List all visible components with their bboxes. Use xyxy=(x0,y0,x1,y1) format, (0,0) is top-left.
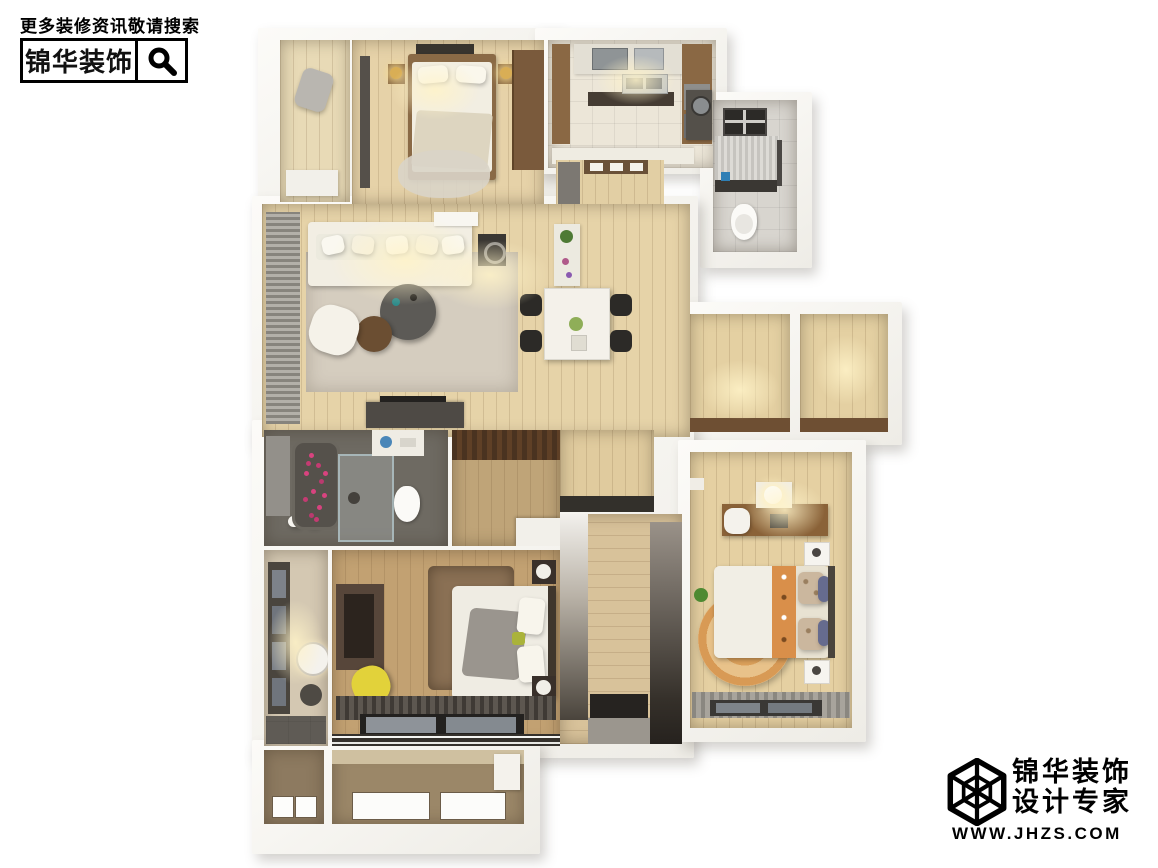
sofa-pillow xyxy=(385,235,409,255)
desk-chair xyxy=(724,508,750,534)
single-bed xyxy=(714,566,830,658)
range-hood xyxy=(634,48,664,70)
sofa xyxy=(308,222,472,286)
bed-pillow xyxy=(516,597,546,636)
bed-runner-pattern xyxy=(772,566,796,658)
window-pane xyxy=(272,678,286,706)
window-pane xyxy=(768,703,812,713)
tv-screen xyxy=(380,396,446,402)
bathtub xyxy=(292,440,340,530)
cooktop xyxy=(592,48,628,70)
window-pane xyxy=(272,606,286,634)
decor-tray xyxy=(484,242,506,264)
bath-shelf xyxy=(372,430,424,456)
desk-lamp xyxy=(764,486,782,504)
floor-window-pane xyxy=(440,792,506,820)
bath-vanity xyxy=(266,436,290,516)
kitchen-sink xyxy=(622,74,668,94)
table-lamp xyxy=(390,67,402,79)
sink-basin xyxy=(626,78,643,89)
bed-pillow xyxy=(417,65,448,85)
wardrobe-mirror-left xyxy=(560,514,588,720)
console-table xyxy=(434,212,478,226)
living-curtain-wall xyxy=(266,212,300,424)
wardrobe-mirror-right xyxy=(650,522,682,744)
logo-url-text: WWW.JHZS.COM xyxy=(952,824,1122,844)
room-walkin-closet xyxy=(452,430,560,546)
dining-table xyxy=(544,288,610,360)
door-glass xyxy=(630,163,643,171)
wardrobe xyxy=(512,50,544,170)
floor-window-pane xyxy=(352,792,430,820)
nightstand-decor xyxy=(812,666,821,675)
toilet-seat xyxy=(735,214,753,234)
balcony-railing xyxy=(332,734,560,746)
bath-counter xyxy=(715,180,777,192)
entry-console xyxy=(554,224,580,286)
nightstand xyxy=(532,560,556,584)
kitchen-counter-top xyxy=(574,44,686,74)
tv-console xyxy=(336,584,384,670)
bench-dark xyxy=(590,694,648,718)
flower-decor xyxy=(562,258,569,265)
kitchen-cabinet-left xyxy=(552,44,570,144)
window-pane xyxy=(272,570,286,598)
dining-chair xyxy=(520,294,542,316)
window-pane xyxy=(716,703,760,713)
headboard xyxy=(828,566,835,658)
shower-column xyxy=(777,140,782,186)
room-master-bedroom-top xyxy=(352,40,544,204)
railing-bar xyxy=(332,742,560,744)
washer-door xyxy=(691,96,711,116)
sofa-pillow xyxy=(415,234,440,256)
window-curtain xyxy=(360,56,370,188)
sink-basin xyxy=(646,78,662,89)
bedroom-rug xyxy=(398,150,490,198)
door-glass xyxy=(610,163,623,171)
room-powder xyxy=(264,550,328,746)
room-bathroom-top xyxy=(713,100,797,252)
room-living-dining xyxy=(262,204,690,437)
window-wall xyxy=(710,700,822,716)
accent-pillow-green xyxy=(512,632,525,645)
side-table-dark xyxy=(478,234,506,266)
cabinet-dark-edge xyxy=(560,496,654,512)
window-mullion xyxy=(725,120,765,123)
step-platform xyxy=(516,518,560,546)
washer-dryer-unit xyxy=(686,90,712,140)
room-balcony-bottom-right xyxy=(332,750,524,824)
threshold-dark-wood xyxy=(800,418,888,432)
tv-screen xyxy=(344,594,374,658)
sofa-pillow xyxy=(351,235,375,256)
potted-plant xyxy=(694,588,708,602)
balcony-cabinet xyxy=(286,170,338,196)
room-storage-right-2 xyxy=(800,314,888,432)
toilet xyxy=(731,204,757,240)
logo-tagline-text: 设计专家 xyxy=(1012,788,1132,818)
floor-tile-dark xyxy=(266,716,326,744)
potted-plant xyxy=(560,230,573,243)
cube-logo-icon xyxy=(946,758,1008,826)
room-bedroom-lower-right xyxy=(690,452,852,728)
room-inner xyxy=(560,430,654,512)
placemat xyxy=(571,335,587,351)
bed-pillow xyxy=(455,65,486,84)
kitchen-counter-dark xyxy=(588,92,674,106)
floor-window-pane xyxy=(295,796,317,818)
room-bathroom-lower xyxy=(264,430,448,546)
nightstand-lamp xyxy=(536,680,551,695)
nightstand-decor xyxy=(812,548,821,557)
window-pane xyxy=(272,642,286,670)
dining-chair xyxy=(610,294,632,316)
coffee-table-small xyxy=(356,316,392,352)
stool-dark xyxy=(300,684,322,706)
window-pane xyxy=(446,717,516,733)
nightstand xyxy=(804,542,830,566)
railing-bar xyxy=(332,736,560,738)
wash-basin xyxy=(296,642,328,676)
footer-logo: 锦华装饰 设计专家 WWW.JHZS.COM xyxy=(938,752,1150,856)
laptop xyxy=(770,514,788,528)
soap-tray xyxy=(400,438,416,447)
shower-enclosure xyxy=(338,454,394,542)
flower-vase-blue xyxy=(380,436,392,448)
balcony-cabinet xyxy=(494,754,520,790)
tv-cabinet xyxy=(366,402,464,428)
wall-shelf xyxy=(690,478,704,490)
room-balcony-top xyxy=(280,40,350,202)
screenshot-canvas: 更多装修资讯敬请搜索 锦华装饰 xyxy=(0,0,1158,868)
room-balcony-bottom-left xyxy=(264,750,324,824)
floor-strip-gray xyxy=(588,718,650,744)
wardrobe-dark xyxy=(452,430,560,460)
window-wall xyxy=(360,714,524,736)
toilet xyxy=(394,486,420,522)
tall-window xyxy=(268,562,290,714)
rose-petals xyxy=(309,453,314,458)
table-decor xyxy=(392,298,400,306)
shower-head xyxy=(348,492,360,504)
table-decor xyxy=(410,294,417,301)
flower-decor xyxy=(566,272,572,278)
floorplan-render xyxy=(0,0,1158,868)
entry-door xyxy=(584,160,648,174)
dining-chair xyxy=(610,330,632,352)
nightstand xyxy=(804,660,830,684)
room-wardrobe-corridor xyxy=(560,514,682,744)
window-pane xyxy=(366,717,436,733)
threshold-dark-wood xyxy=(690,418,790,432)
skylight-window xyxy=(723,108,767,136)
centerpiece xyxy=(569,317,583,331)
floor-window-pane xyxy=(272,796,294,818)
room-bedroom-lower-left xyxy=(332,550,560,746)
nightstand-lamp xyxy=(536,564,551,579)
table-lamp xyxy=(500,67,512,79)
door-glass xyxy=(590,163,603,171)
dining-chair xyxy=(520,330,542,352)
sofa-pillow xyxy=(441,235,465,256)
lounge-chair xyxy=(293,66,336,114)
room-storage-right-1 xyxy=(690,314,790,432)
logo-brand-text: 锦华装饰 xyxy=(1012,758,1132,788)
bed-duvet xyxy=(714,566,776,658)
toiletry-item xyxy=(721,172,730,181)
